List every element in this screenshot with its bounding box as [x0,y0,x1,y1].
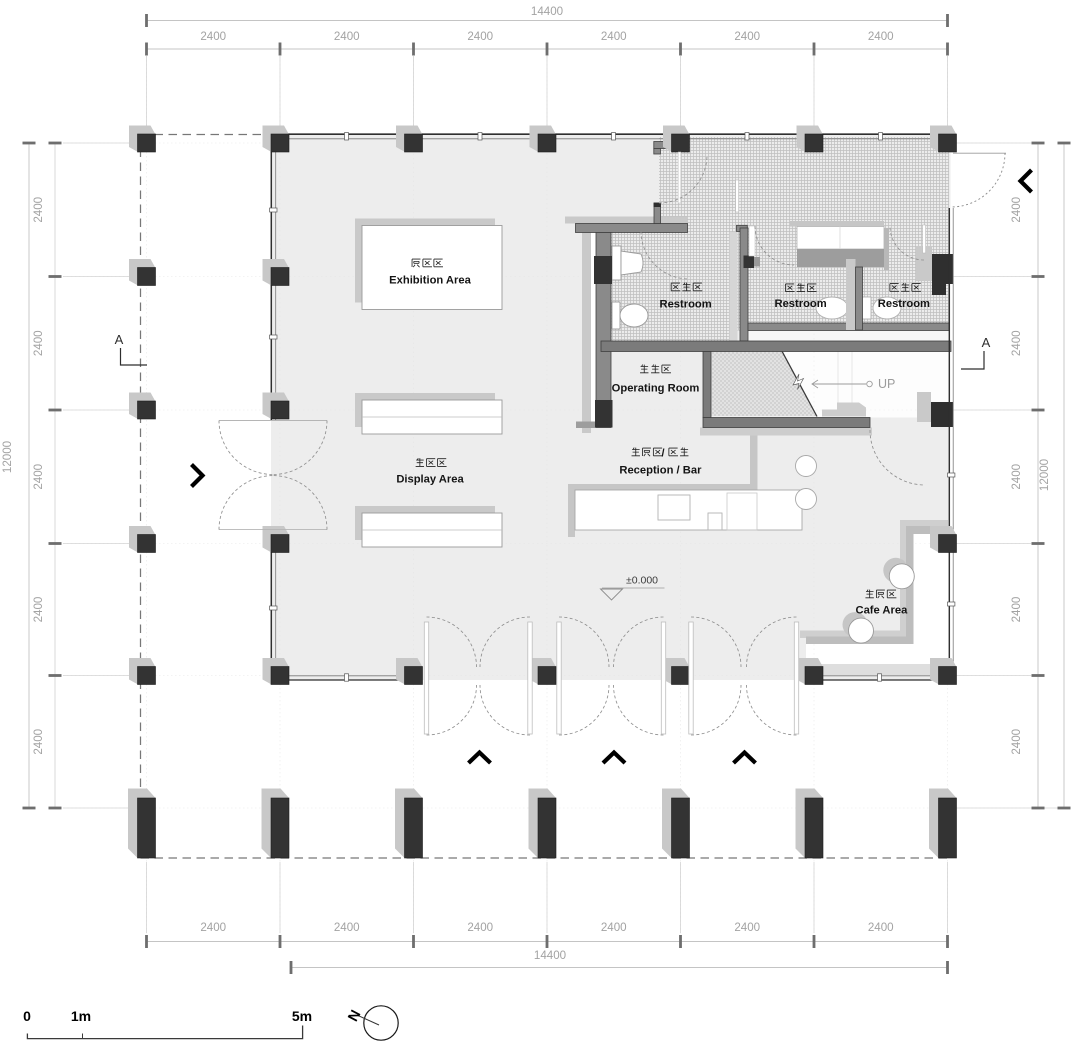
svg-text:/: / [662,448,665,460]
svg-text:2400: 2400 [467,30,493,43]
svg-text:2400: 2400 [32,330,45,356]
svg-text:2400: 2400 [32,597,45,623]
svg-text:Display Area: Display Area [396,474,464,486]
svg-text:2400: 2400 [32,729,45,755]
svg-text:±0.000: ±0.000 [626,575,658,587]
svg-text:2400: 2400 [868,30,894,43]
svg-text:2400: 2400 [467,921,493,934]
svg-text:2400: 2400 [32,464,45,490]
svg-text:0: 0 [23,1008,31,1024]
svg-text:14400: 14400 [534,949,566,962]
svg-text:2400: 2400 [868,921,894,934]
svg-text:Restroom: Restroom [659,299,711,311]
svg-text:2400: 2400 [200,921,226,934]
svg-text:2400: 2400 [1010,197,1023,223]
svg-text:2400: 2400 [1010,330,1023,356]
svg-text:2400: 2400 [200,30,226,43]
svg-text:A: A [115,332,124,347]
svg-text:14400: 14400 [531,5,563,18]
svg-text:A: A [982,335,991,350]
svg-text:Operating Room: Operating Room [612,383,700,395]
svg-text:N: N [345,1008,364,1025]
svg-text:2400: 2400 [334,30,360,43]
svg-text:Exhibition Area: Exhibition Area [389,275,471,287]
svg-text:Restroom: Restroom [774,298,826,310]
svg-text:2400: 2400 [734,30,760,43]
svg-text:5m: 5m [292,1008,312,1024]
svg-text:12000: 12000 [1038,459,1051,491]
svg-text:Restroom: Restroom [878,298,930,310]
svg-text:12000: 12000 [1,441,14,473]
svg-text:2400: 2400 [1010,464,1023,490]
svg-text:Reception / Bar: Reception / Bar [619,465,702,477]
svg-text:2400: 2400 [601,30,627,43]
svg-text:2400: 2400 [601,921,627,934]
svg-text:UP: UP [878,377,895,391]
svg-text:1m: 1m [71,1008,91,1024]
svg-text:2400: 2400 [32,197,45,223]
svg-text:2400: 2400 [334,921,360,934]
svg-text:2400: 2400 [734,921,760,934]
svg-text:Cafe Area: Cafe Area [855,605,908,617]
svg-text:2400: 2400 [1010,729,1023,755]
svg-text:2400: 2400 [1010,597,1023,623]
